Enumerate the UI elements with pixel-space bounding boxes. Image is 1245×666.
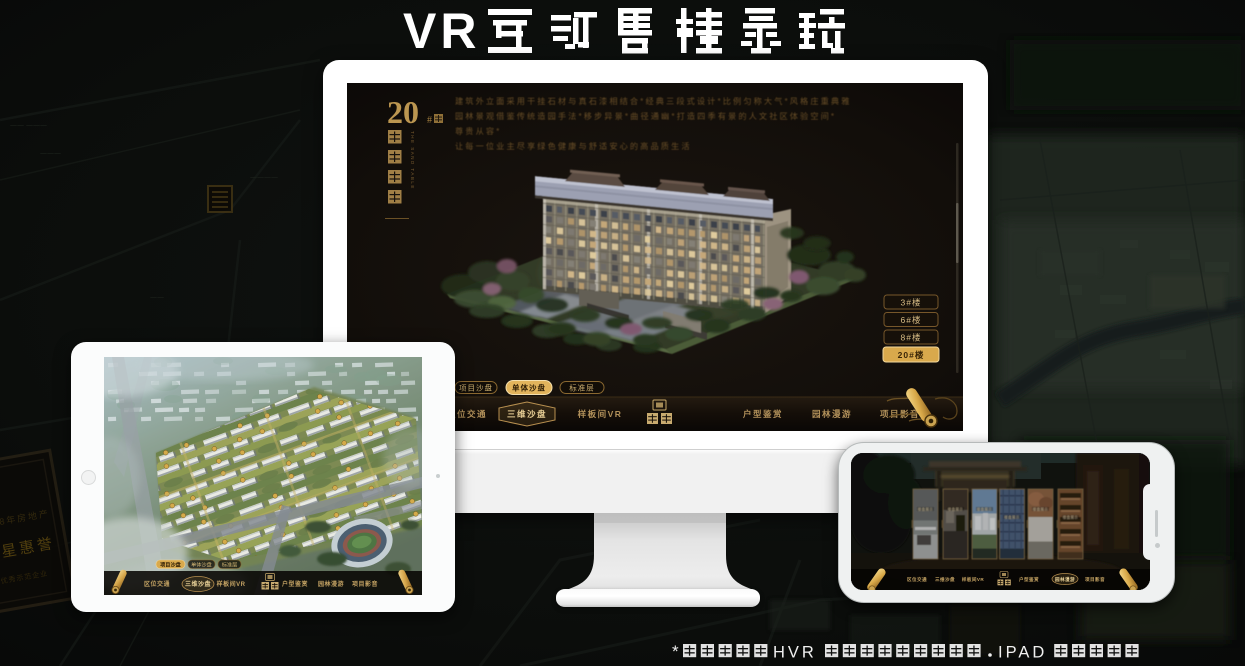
svg-text:园林漫游: 园林漫游	[318, 580, 344, 588]
svg-text:区位交通: 区位交通	[144, 580, 170, 588]
svg-text:*: *	[672, 642, 679, 661]
svg-text:建筑外立面采用干挂石材与真石漆相结合*经典三段式设计*比例匀: 建筑外立面采用干挂石材与真石漆相结合*经典三段式设计*比例匀称大气*风格庄重典雅	[455, 96, 852, 106]
svg-text:楼盘展示: 楼盘展示	[1004, 514, 1020, 519]
svg-text:20#楼: 20#楼	[898, 350, 925, 360]
svg-text:三维沙盘: 三维沙盘	[935, 576, 955, 583]
svg-text:IPAD: IPAD	[998, 644, 1047, 662]
svg-text:样板间VR: 样板间VR	[578, 409, 623, 419]
svg-text:户型鉴赏: 户型鉴赏	[1018, 576, 1039, 583]
svg-text:项目沙盘: 项目沙盘	[160, 561, 182, 569]
svg-text:单体沙盘: 单体沙盘	[512, 383, 546, 393]
svg-text:让每一位业主尽享绿色健康与舒适安心的高品质生活: 让每一位业主尽享绿色健康与舒适安心的高品质生活	[455, 141, 692, 151]
svg-text:项目沙盘: 项目沙盘	[459, 383, 493, 393]
svg-text:一一一一: 一一一一	[250, 175, 278, 182]
svg-text:#: #	[427, 115, 432, 126]
svg-text:楼盘展示: 楼盘展示	[1033, 506, 1049, 511]
svg-text:区位交通: 区位交通	[907, 576, 927, 583]
svg-text:三维沙盘: 三维沙盘	[185, 580, 211, 588]
svg-text:8#楼: 8#楼	[901, 333, 922, 343]
svg-text:尊贵从容*: 尊贵从容*	[455, 126, 501, 136]
svg-text:标准层: 标准层	[222, 561, 238, 569]
svg-text:一一 一一一: 一一 一一一	[10, 123, 47, 130]
svg-text:单体沙盘: 单体沙盘	[191, 561, 212, 569]
svg-text:三维沙盘: 三维沙盘	[507, 409, 547, 419]
svg-text:户型鉴赏: 户型鉴赏	[282, 580, 308, 588]
svg-text:一一一: 一一一	[40, 151, 61, 158]
svg-text:园林漫游: 园林漫游	[1055, 576, 1075, 583]
svg-text:楼盘展示: 楼盘展示	[918, 506, 934, 511]
svg-text:标准层: 标准层	[569, 383, 595, 393]
svg-text:项目影音: 项目影音	[352, 580, 378, 588]
svg-text:样板间VR: 样板间VR	[962, 576, 984, 583]
svg-text:楼盘展示: 楼盘展示	[977, 506, 993, 511]
svg-text:楼盘展示: 楼盘展示	[948, 506, 964, 511]
svg-text:园林漫游: 园林漫游	[812, 409, 852, 419]
svg-text:一一: 一一	[150, 295, 164, 302]
svg-text:园林景观借鉴传统造园手法*移步异景*曲径通幽*打造四季有景的: 园林景观借鉴传统造园手法*移步异景*曲径通幽*打造四季有景的人文社区体验空间*	[455, 111, 836, 121]
svg-text:户型鉴赏: 户型鉴赏	[742, 409, 783, 419]
svg-text:项目影音: 项目影音	[1085, 576, 1105, 583]
svg-text:VR: VR	[403, 3, 480, 59]
svg-text:样板间VR: 样板间VR	[217, 580, 246, 588]
svg-text:THE SAND TABLE: THE SAND TABLE	[410, 131, 415, 190]
svg-text:20: 20	[387, 94, 419, 130]
svg-text:6#楼: 6#楼	[901, 315, 922, 325]
svg-text:HVR: HVR	[773, 644, 817, 662]
svg-text:楼盘展示: 楼盘展示	[1063, 514, 1079, 519]
svg-text:3#楼: 3#楼	[901, 298, 922, 308]
